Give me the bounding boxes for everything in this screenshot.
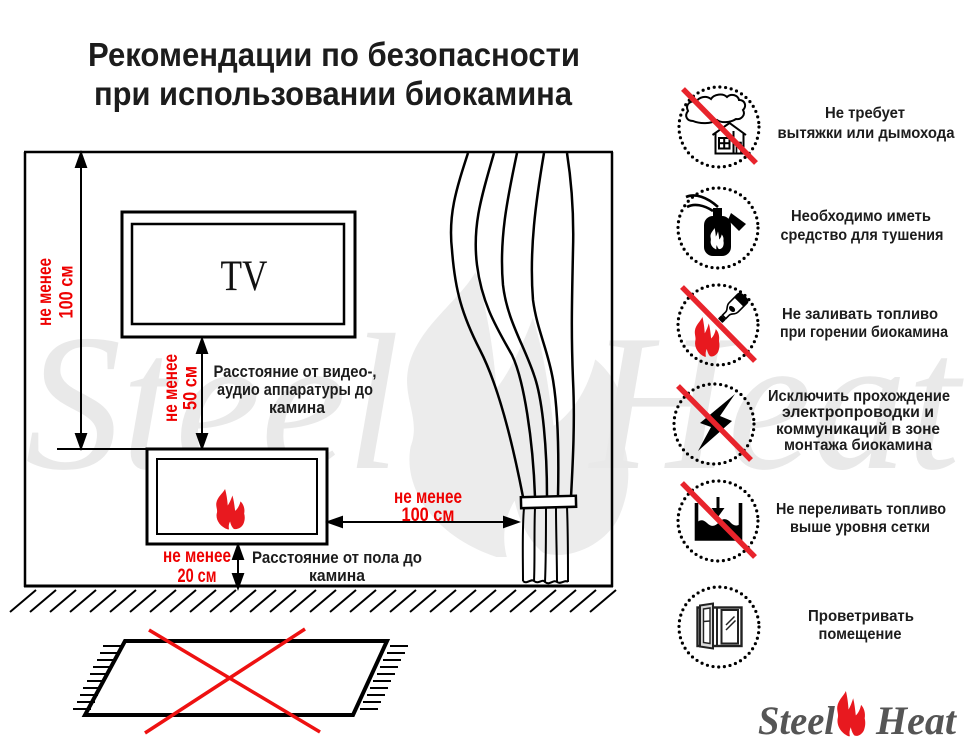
- svg-text:камина: камина: [309, 566, 365, 585]
- svg-text:Не требует: Не требует: [825, 105, 905, 122]
- svg-text:Рекомендации по безопасности: Рекомендации по безопасности: [88, 36, 580, 73]
- svg-text:50 см: 50 см: [181, 366, 202, 410]
- svg-text:Необходимо иметь: Необходимо иметь: [791, 208, 931, 225]
- svg-text:не менее: не менее: [35, 258, 56, 326]
- svg-text:Heat: Heat: [875, 698, 958, 743]
- svg-text:Не заливать топливо: Не заливать топливо: [782, 306, 938, 323]
- svg-text:20 см: 20 см: [178, 566, 217, 587]
- svg-text:при использовании биокамина: при использовании биокамина: [94, 75, 573, 112]
- svg-text:монтажа биокамина: монтажа биокамина: [784, 437, 932, 454]
- svg-text:выше уровня сетки: выше уровня сетки: [790, 519, 930, 536]
- svg-text:при горении биокамина: при горении биокамина: [780, 324, 948, 341]
- svg-text:не менее: не менее: [161, 354, 182, 422]
- svg-text:средство для тушения: средство для тушения: [781, 227, 944, 244]
- svg-text:помещение: помещение: [819, 626, 902, 643]
- svg-text:Исключить прохождение: Исключить прохождение: [768, 388, 950, 405]
- svg-text:Расстояние от видео-,: Расстояние от видео-,: [214, 362, 377, 381]
- svg-text:Не переливать топливо: Не переливать топливо: [776, 501, 946, 518]
- svg-text:100 см: 100 см: [402, 505, 455, 526]
- svg-text:Проветривать: Проветривать: [808, 608, 914, 625]
- svg-text:вытяжки или дымохода: вытяжки или дымохода: [778, 125, 955, 142]
- svg-text:Расстояние от пола до: Расстояние от пола до: [252, 548, 422, 567]
- svg-text:аудио аппаратуры до: аудио аппаратуры до: [217, 380, 373, 399]
- svg-text:TV: TV: [221, 253, 268, 300]
- svg-text:коммуникаций в зоне: коммуникаций в зоне: [776, 421, 940, 438]
- svg-text:Steel: Steel: [758, 698, 836, 743]
- svg-text:100 см: 100 см: [57, 266, 78, 319]
- svg-text:камина: камина: [269, 398, 325, 417]
- svg-text:не менее: не менее: [163, 546, 231, 567]
- svg-text:электропроводки и: электропроводки и: [782, 404, 934, 421]
